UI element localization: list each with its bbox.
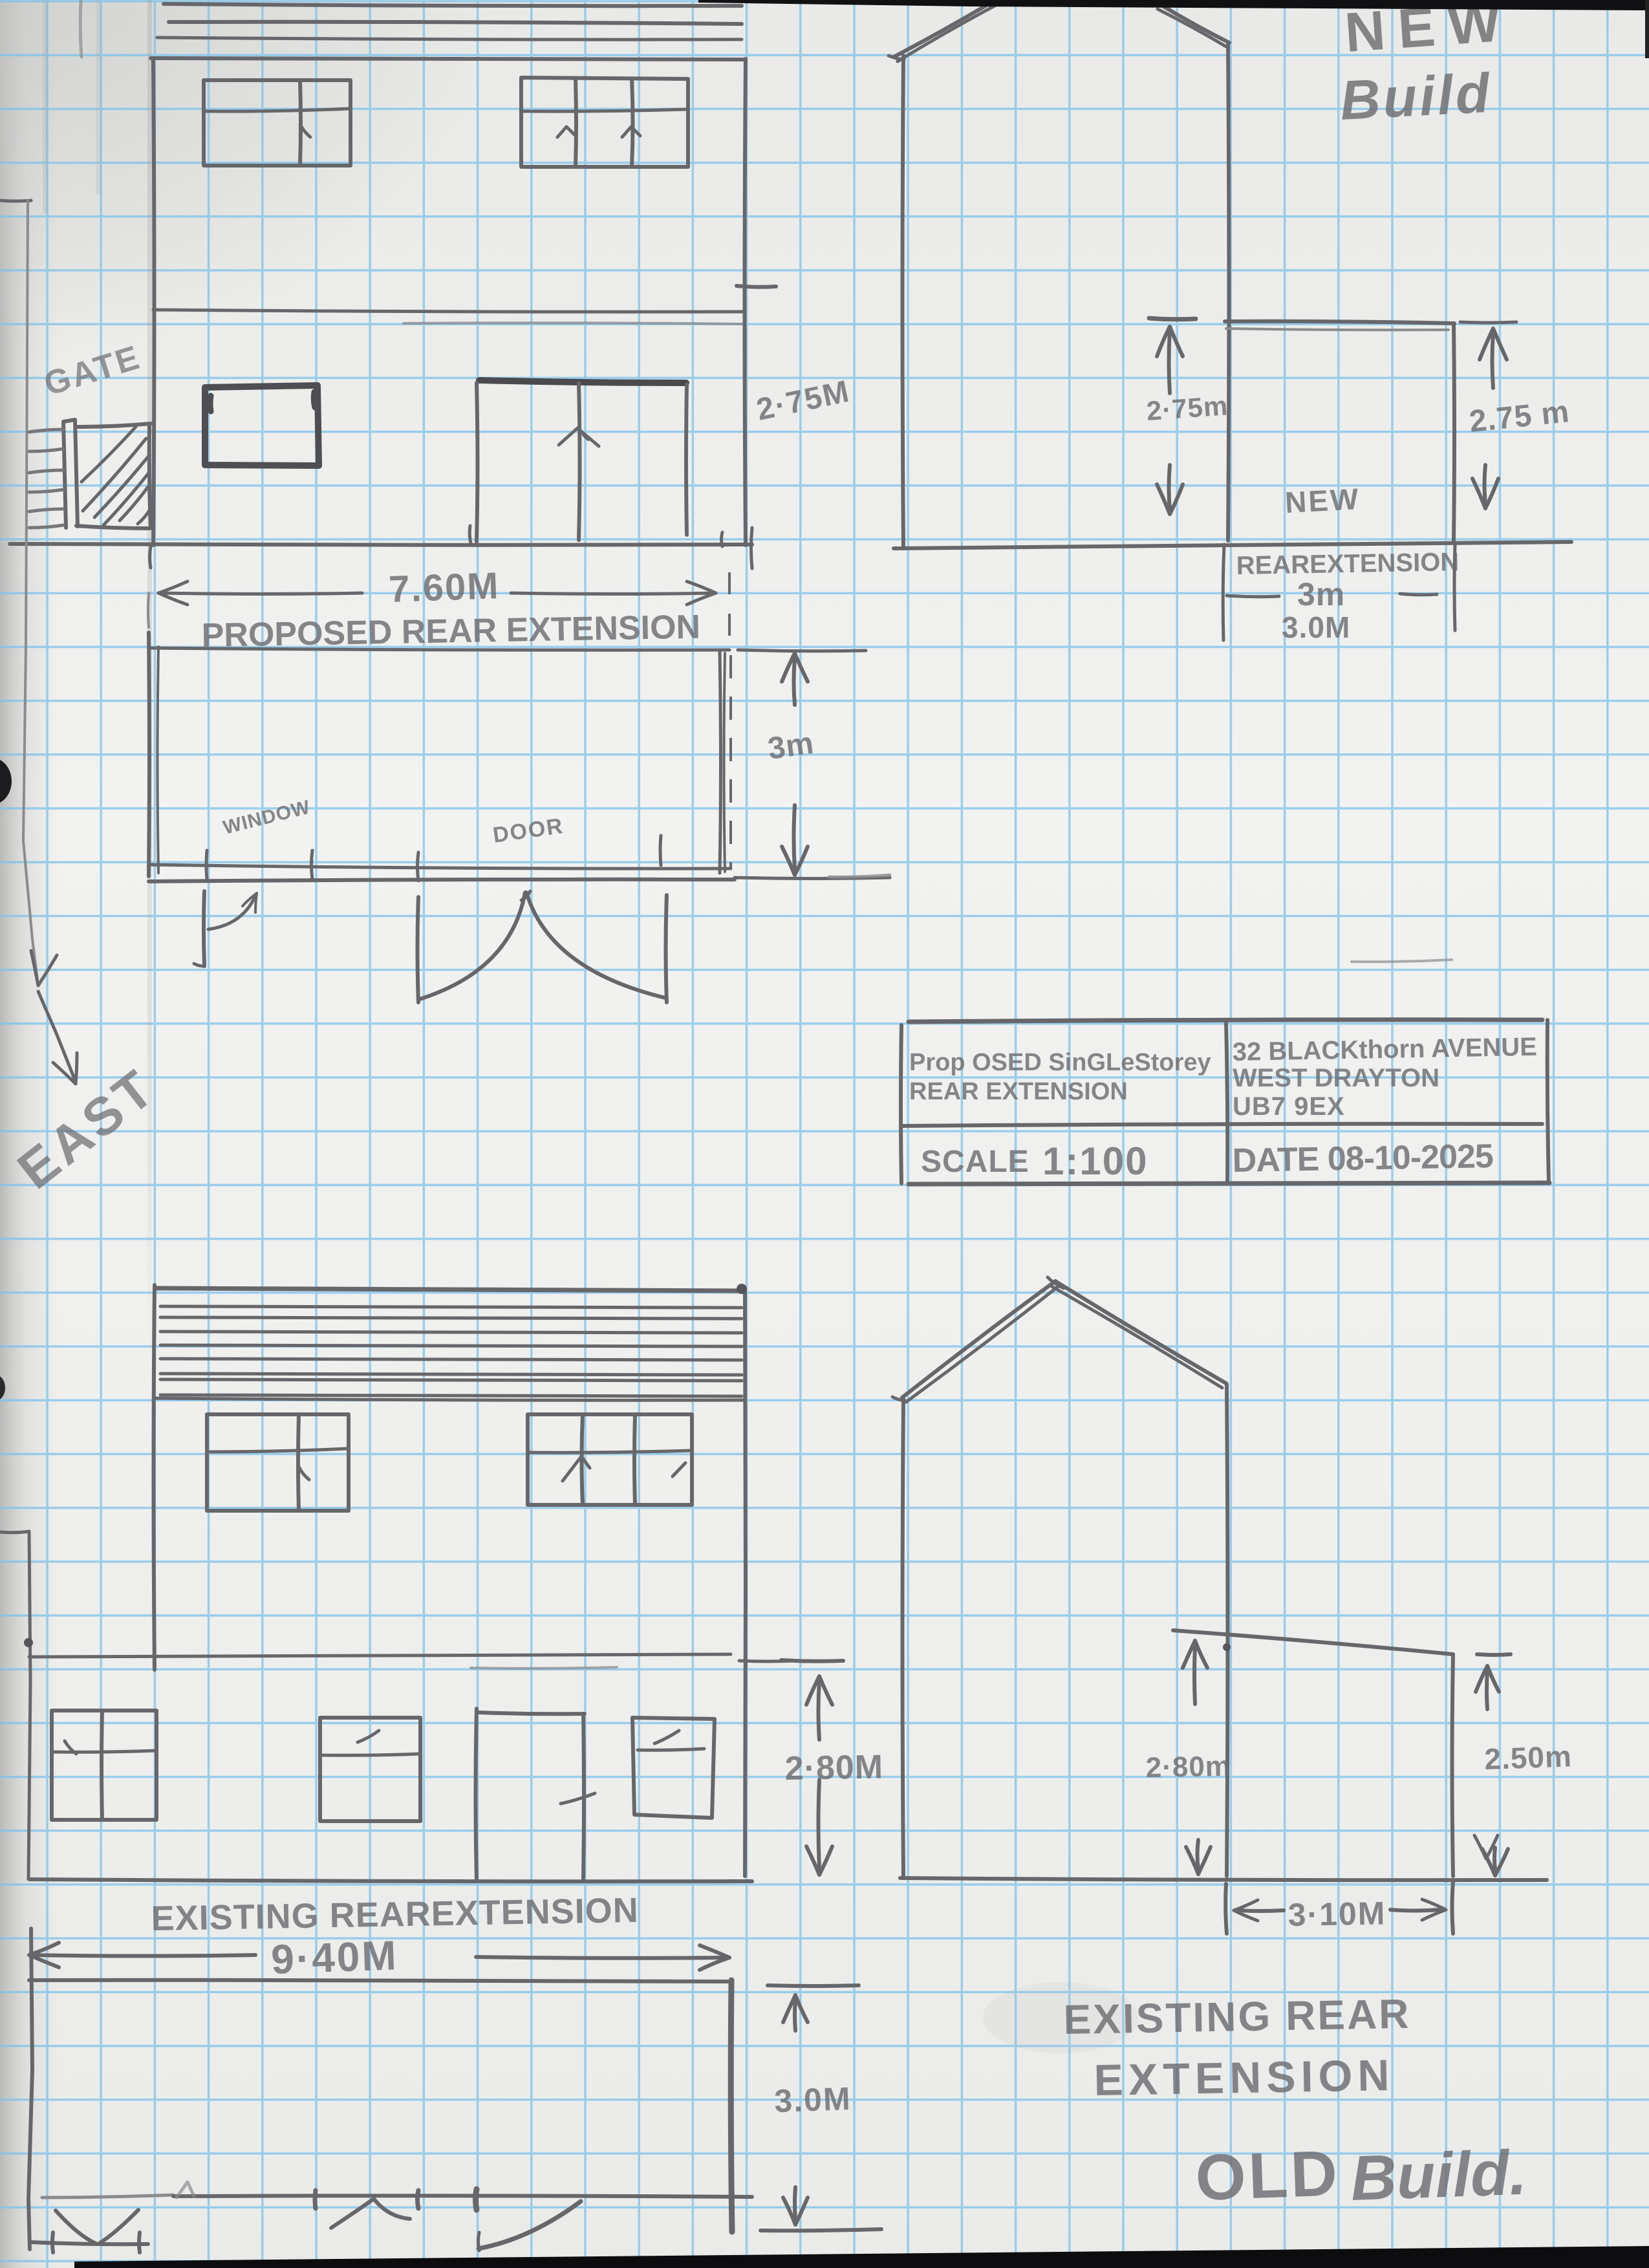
svg-text:SCALE: SCALE xyxy=(921,1145,1029,1179)
svg-text:EXTENSION: EXTENSION xyxy=(1094,2051,1395,2105)
svg-text:2·80m: 2·80m xyxy=(1145,1751,1231,1784)
svg-text:1:100: 1:100 xyxy=(1042,1139,1148,1183)
svg-text:UB7 9EX: UB7 9EX xyxy=(1233,1092,1345,1121)
svg-text:WEST DRAYTON: WEST DRAYTON xyxy=(1233,1064,1439,1092)
svg-text:3.0M: 3.0M xyxy=(1282,610,1350,644)
svg-text:NEW: NEW xyxy=(1284,482,1361,519)
svg-text:3m: 3m xyxy=(1297,576,1345,612)
svg-text:Build.: Build. xyxy=(1350,2137,1528,2214)
svg-text:DATE 08-10-2025: DATE 08-10-2025 xyxy=(1232,1138,1493,1180)
svg-text:3·10M: 3·10M xyxy=(1288,1895,1386,1933)
svg-text:3.0M: 3.0M xyxy=(773,2080,852,2119)
svg-text:REAREXTENSION: REAREXTENSION xyxy=(1236,548,1459,580)
svg-text:EXISTING REAR: EXISTING REAR xyxy=(1063,1991,1411,2043)
svg-text:REAR EXTENSION: REAR EXTENSION xyxy=(909,1078,1128,1105)
svg-text:7.60M: 7.60M xyxy=(388,565,500,610)
svg-text:3m: 3m xyxy=(766,726,816,766)
svg-text:2·75m: 2·75m xyxy=(1145,390,1229,426)
svg-text:Prop OSED SinGLeStorey: Prop OSED SinGLeStorey xyxy=(909,1049,1211,1076)
svg-text:2.50m: 2.50m xyxy=(1484,1739,1573,1776)
svg-text:32 BLACKthorn AVENUE: 32 BLACKthorn AVENUE xyxy=(1232,1033,1537,1066)
svg-text:9·40M: 9·40M xyxy=(270,1932,399,1983)
svg-text:OLD: OLD xyxy=(1194,2137,1341,2214)
svg-text:2·80M: 2·80M xyxy=(784,1748,883,1787)
svg-text:Build: Build xyxy=(1339,62,1494,132)
